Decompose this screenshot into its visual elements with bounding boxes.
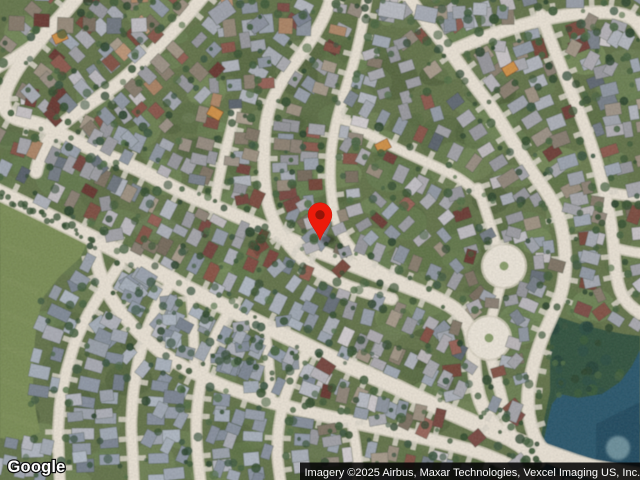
svg-text:Imagery ©2025 Airbus, Maxar Te: Imagery ©2025 Airbus, Maxar Technologies…: [305, 467, 640, 479]
svg-text:Google: Google: [8, 458, 66, 476]
